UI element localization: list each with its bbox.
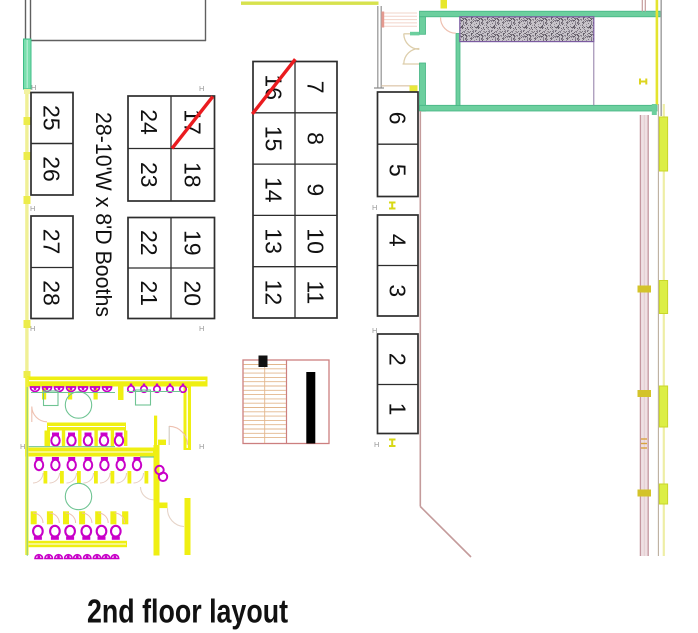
svg-text:2: 2 [385, 353, 411, 366]
svg-text:15: 15 [261, 126, 287, 152]
svg-text:H: H [30, 204, 35, 213]
svg-text:6: 6 [385, 112, 411, 125]
svg-text:H: H [372, 203, 377, 212]
svg-text:H: H [20, 442, 25, 451]
svg-text:4: 4 [385, 234, 411, 247]
svg-text:H: H [372, 326, 377, 335]
svg-text:24: 24 [136, 109, 162, 135]
svg-text:1: 1 [385, 403, 411, 416]
svg-text:2nd floor layout: 2nd floor layout [87, 593, 288, 630]
svg-text:21: 21 [136, 281, 162, 307]
svg-text:28: 28 [39, 280, 65, 306]
svg-text:19: 19 [180, 230, 206, 256]
svg-text:28-10'W x 8'D Booths: 28-10'W x 8'D Booths [91, 112, 116, 317]
svg-text:20: 20 [180, 281, 206, 307]
svg-text:H: H [199, 442, 204, 451]
svg-text:H: H [30, 324, 35, 333]
svg-text:18: 18 [180, 162, 206, 188]
svg-text:S: S [259, 359, 266, 364]
svg-text:11: 11 [303, 280, 329, 304]
svg-text:13: 13 [261, 228, 287, 254]
svg-text:14: 14 [261, 177, 287, 203]
svg-text:22: 22 [136, 230, 162, 256]
svg-text:H: H [199, 324, 204, 333]
svg-text:3: 3 [385, 284, 411, 297]
svg-text:27: 27 [39, 229, 65, 255]
svg-text:H: H [31, 83, 36, 92]
svg-text:9: 9 [303, 183, 329, 196]
svg-text:12: 12 [261, 280, 287, 306]
svg-text:8: 8 [303, 132, 329, 145]
svg-text:26: 26 [39, 156, 65, 182]
svg-text:25: 25 [39, 105, 65, 131]
svg-text:5: 5 [385, 164, 411, 177]
svg-text:H: H [199, 84, 204, 93]
svg-text:10: 10 [303, 228, 329, 254]
svg-text:7: 7 [303, 81, 329, 94]
svg-text:H: H [374, 440, 379, 449]
svg-text:23: 23 [136, 162, 162, 188]
